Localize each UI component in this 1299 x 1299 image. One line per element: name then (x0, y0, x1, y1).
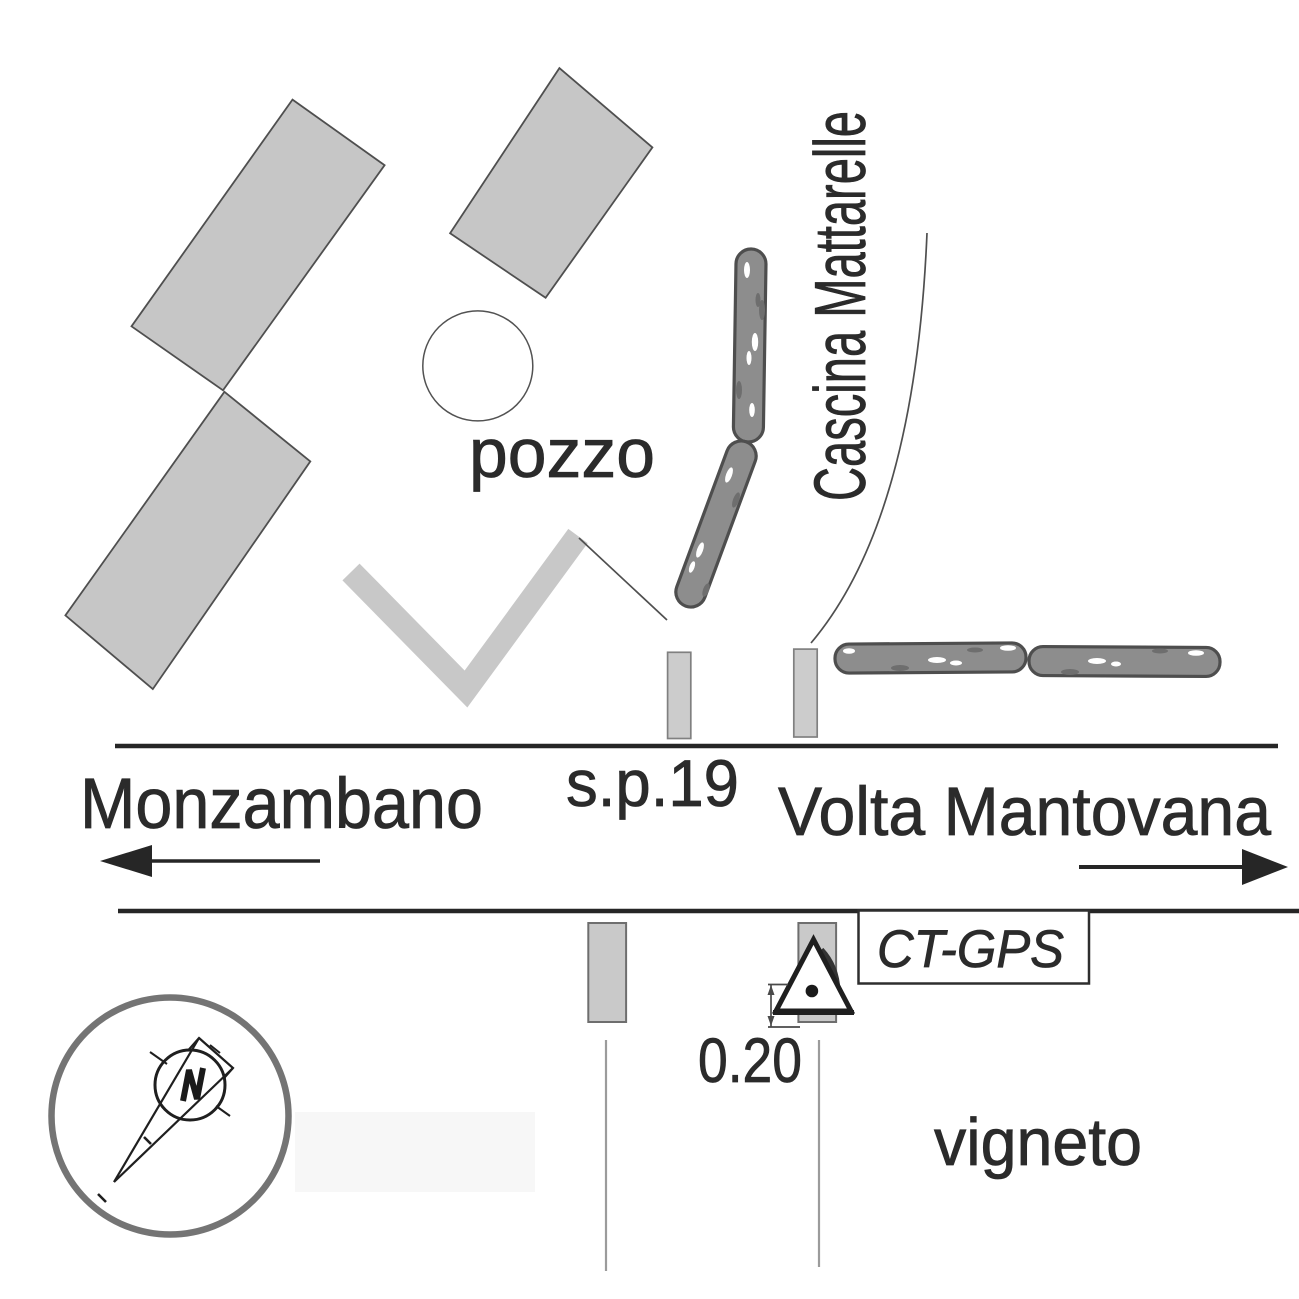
svg-text:Cascina Mattarelle: Cascina Mattarelle (801, 111, 881, 501)
svg-text:CT-GPS: CT-GPS (877, 920, 1064, 979)
svg-text:0.20: 0.20 (698, 1026, 802, 1096)
svg-text:vigneto: vigneto (934, 1105, 1142, 1180)
svg-text:Volta Mantovana: Volta Mantovana (778, 773, 1272, 850)
svg-text:s.p.19: s.p.19 (566, 746, 739, 820)
svg-text:Monzambano: Monzambano (80, 765, 483, 844)
svg-text:pozzo: pozzo (469, 414, 655, 492)
